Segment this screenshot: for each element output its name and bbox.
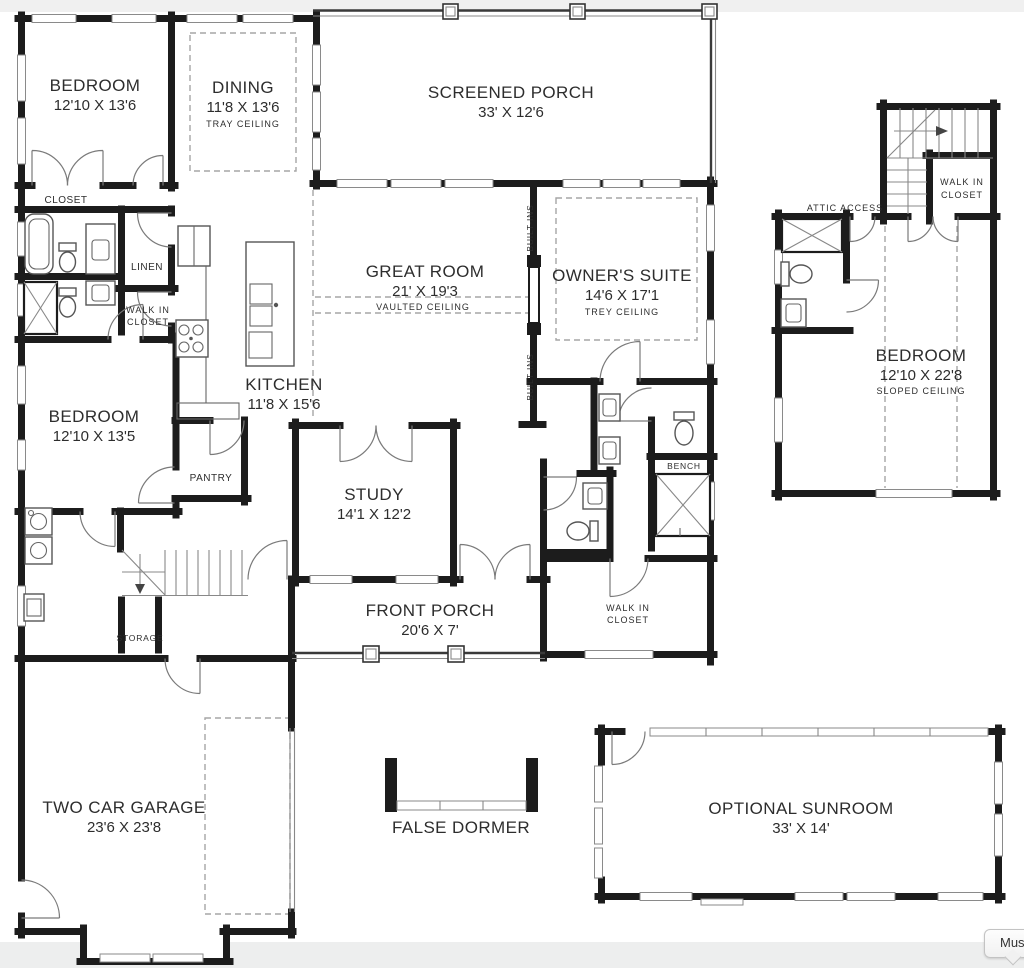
toilet [60, 297, 76, 317]
label-study-dims: 14'1 X 12'2 [337, 506, 411, 523]
vanity-sink [599, 394, 620, 421]
label-owners-suite-dims: 14'6 X 17'1 [585, 287, 659, 304]
label-linen: LINEN [131, 262, 163, 273]
label-dining-note: TRAY CEILING [206, 119, 280, 129]
label-storage: STORAGE [116, 633, 163, 643]
floor-plan-drawing: BEDROOM 12'10 X 13'6 DINING 11'8 X 13'6 … [0, 0, 1024, 968]
label-study-name: STUDY [344, 485, 404, 504]
label-dining-dims: 11'8 X 13'6 [206, 99, 279, 116]
label-kitchen-name: KITCHEN [245, 375, 322, 394]
label-kitchen-dims: 11'8 X 15'6 [247, 396, 320, 413]
vanity-sink [599, 437, 620, 464]
vanity-sink [86, 224, 115, 274]
label-screened-porch-name: SCREENED PORCH [428, 83, 594, 102]
label-attic-access: ATTIC ACCESS [807, 203, 883, 213]
label-owners-suite-name: OWNER'S SUITE [552, 266, 692, 285]
label-great-room-dims: 21' X 19'3 [392, 283, 458, 300]
label-great-room-name: GREAT ROOM [366, 262, 485, 281]
toilet [790, 265, 812, 283]
label-bedroom-left-dims: 12'10 X 13'5 [53, 428, 135, 445]
label-built-ins-top: BUILT-INS [525, 204, 535, 251]
label-sunroom-name: OPTIONAL SUNROOM [708, 799, 893, 818]
label-closet: CLOSET [44, 195, 87, 206]
sink [583, 483, 607, 509]
label-built-ins-bottom: BUILT-INS [525, 353, 535, 400]
label-bedroom-left-name: BEDROOM [49, 407, 140, 426]
label-bench: BENCH [667, 461, 701, 471]
label-bonus-bedroom-name: BEDROOM [876, 346, 967, 365]
label-owners-suite-note: TREY CEILING [585, 307, 659, 317]
toilet [567, 522, 589, 540]
label-walkin-owner-2: CLOSET [607, 615, 649, 625]
label-screened-porch-dims: 33' X 12'6 [478, 104, 544, 121]
label-walkin-upper-1: WALK IN [940, 177, 984, 187]
label-garage-dims: 23'6 X 23'8 [87, 819, 161, 836]
label-walkin-owner-1: WALK IN [606, 603, 650, 613]
toilet [60, 252, 76, 272]
label-false-dormer: FALSE DORMER [392, 818, 530, 837]
label-walkin-left-2: CLOSET [127, 317, 169, 327]
floor-plan-page: BEDROOM 12'10 X 13'6 DINING 11'8 X 13'6 … [0, 0, 1024, 968]
label-bonus-bedroom-dims: 12'10 X 22'8 [880, 367, 962, 384]
label-bedroom-top-dims: 12'10 X 13'6 [54, 97, 136, 114]
label-walkin-left-1: WALK IN [126, 305, 170, 315]
label-sunroom-dims: 33' X 14' [772, 820, 830, 837]
label-garage-name: TWO CAR GARAGE [42, 798, 205, 817]
sink [781, 299, 806, 327]
label-great-room-note: VAULTED CEILING [376, 302, 470, 312]
label-walkin-upper-2: CLOSET [941, 190, 983, 200]
label-dining-name: DINING [212, 78, 274, 97]
label-front-porch-name: FRONT PORCH [366, 601, 495, 620]
label-bedroom-top-name: BEDROOM [50, 76, 141, 95]
dryer [25, 537, 52, 564]
label-bonus-bedroom-note: SLOPED CEILING [876, 386, 965, 396]
label-front-porch-dims: 20'6 X 7' [401, 622, 459, 639]
tooltip: Mus [984, 929, 1024, 958]
label-pantry: PANTRY [190, 473, 233, 484]
toilet [675, 421, 693, 445]
fireplace [527, 255, 541, 335]
